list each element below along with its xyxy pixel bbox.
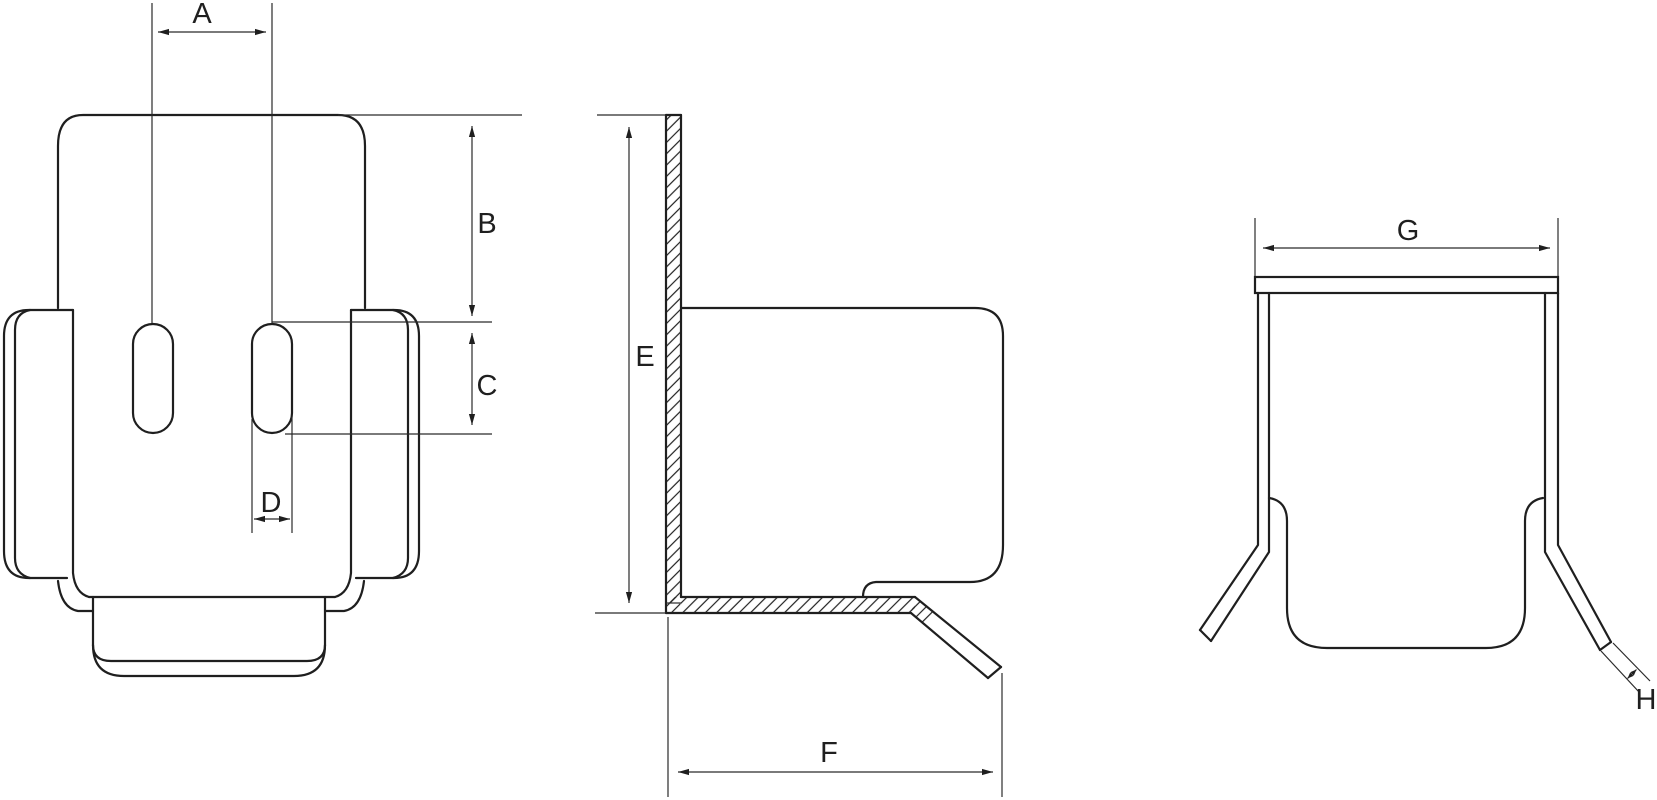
dimension-a: A <box>152 0 272 323</box>
dimension-g: G <box>1255 215 1558 276</box>
drawing-canvas: A B C D <box>0 0 1657 800</box>
dimension-c-label: C <box>477 370 498 402</box>
dimension-h-label: H <box>1636 684 1657 716</box>
front-left-wing-edge <box>73 310 89 597</box>
front-right-wing-edge <box>335 310 351 597</box>
front-body-outline <box>58 115 365 308</box>
side-body-profile <box>682 308 1003 597</box>
side-spring-tab-end-cap <box>988 667 1001 678</box>
dimension-b: B <box>272 115 522 322</box>
rear-top-plate <box>1255 277 1558 293</box>
dimension-c: C <box>285 333 497 434</box>
dimension-b-label: B <box>477 208 496 240</box>
front-right-wing-inner-bend-line <box>393 310 408 578</box>
rear-view: G H <box>1200 215 1656 716</box>
dim-h-line <box>1628 670 1637 679</box>
front-slot-right <box>252 324 292 433</box>
rear-right-leg-end-cap <box>1600 642 1611 650</box>
dimension-f: F <box>668 617 1002 797</box>
dimension-g-label: G <box>1397 215 1420 247</box>
rear-left-leg-end-cap <box>1200 630 1211 641</box>
dimension-f-label: F <box>820 737 838 769</box>
side-wall-hatch <box>667 115 681 603</box>
rear-left-leg-outer <box>1200 293 1258 630</box>
side-view: E F <box>595 115 1003 797</box>
front-bottom-tab-inner-contour <box>93 645 325 661</box>
dimension-d-label: D <box>261 487 282 519</box>
side-corner-hatch <box>667 597 681 613</box>
rear-left-leg-inner <box>1211 293 1269 641</box>
front-view: A B C D <box>4 0 522 676</box>
rear-body-profile <box>1269 498 1543 648</box>
dim-h-ext-lower <box>1601 651 1639 692</box>
dimension-h: H <box>1601 643 1656 716</box>
rear-right-leg-inner <box>1545 293 1600 650</box>
side-spring-tab-inner <box>911 613 988 678</box>
technical-drawing-page: A B C D <box>0 0 1657 800</box>
dimension-a-label: A <box>192 0 212 30</box>
front-slot-left <box>133 324 173 433</box>
dimension-e: E <box>595 115 666 613</box>
dimension-e-label: E <box>635 341 654 373</box>
side-spring-tab-outer <box>915 597 1001 667</box>
side-plate-hatch <box>681 597 915 613</box>
front-left-wing-inner-bend-line <box>15 310 30 578</box>
